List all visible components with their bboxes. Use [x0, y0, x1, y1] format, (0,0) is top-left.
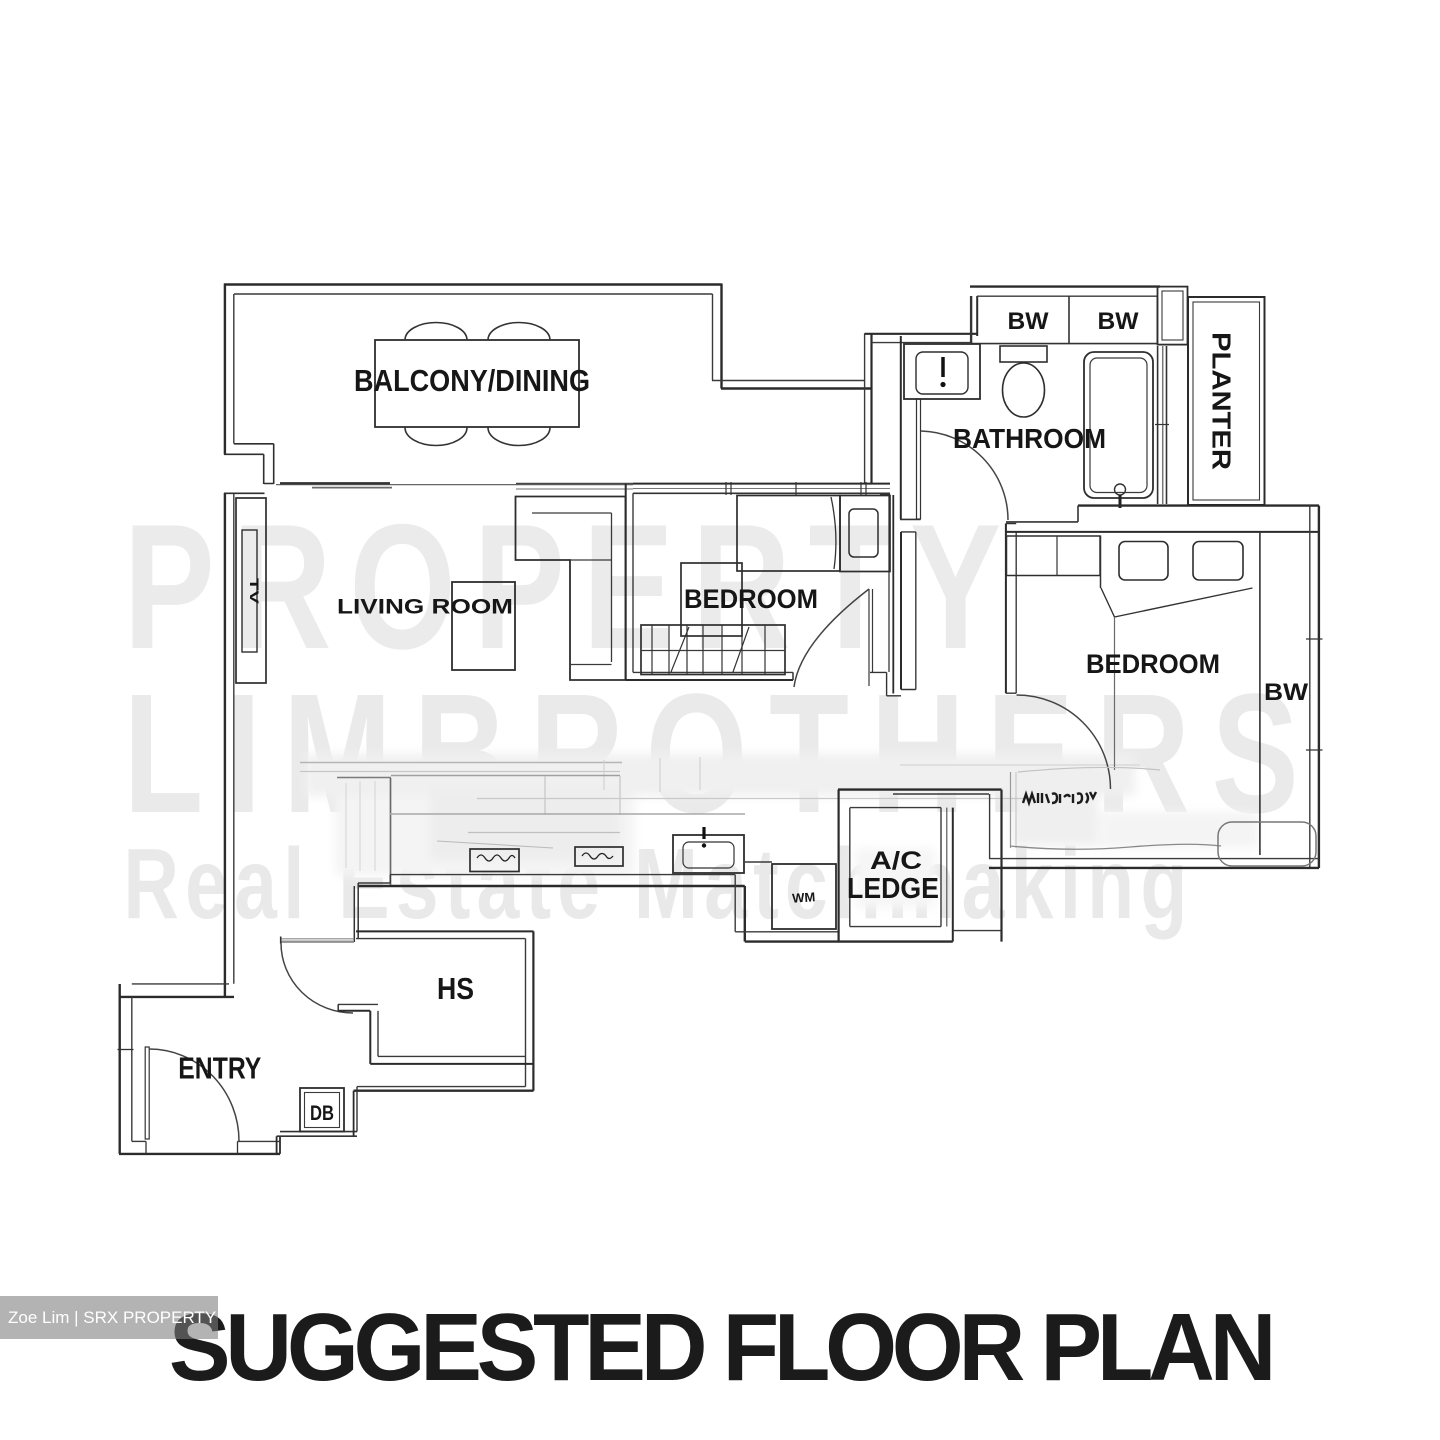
svg-text:BEDROOM: BEDROOM	[684, 584, 818, 614]
svg-text:HS: HS	[437, 972, 474, 1006]
svg-text:DB: DB	[310, 1102, 334, 1125]
svg-text:BW: BW	[1008, 308, 1049, 335]
svg-text:BATHROOM: BATHROOM	[953, 423, 1106, 454]
svg-text:LIVING ROOM: LIVING ROOM	[337, 596, 513, 619]
svg-text:PLANTER: PLANTER	[1207, 332, 1237, 470]
svg-text:BEDROOM: BEDROOM	[1086, 649, 1220, 679]
svg-text:ENTRY: ENTRY	[178, 1052, 261, 1086]
svg-text:BW: BW	[1098, 308, 1139, 335]
svg-text:BW: BW	[1264, 679, 1308, 706]
svg-text:WM: WM	[792, 889, 816, 906]
svg-text:TV: TV	[247, 578, 261, 604]
svg-text:BALCONY/DINING: BALCONY/DINING	[354, 363, 590, 398]
svg-text:LEDGE: LEDGE	[847, 873, 939, 905]
svg-text:A/C: A/C	[870, 847, 922, 875]
